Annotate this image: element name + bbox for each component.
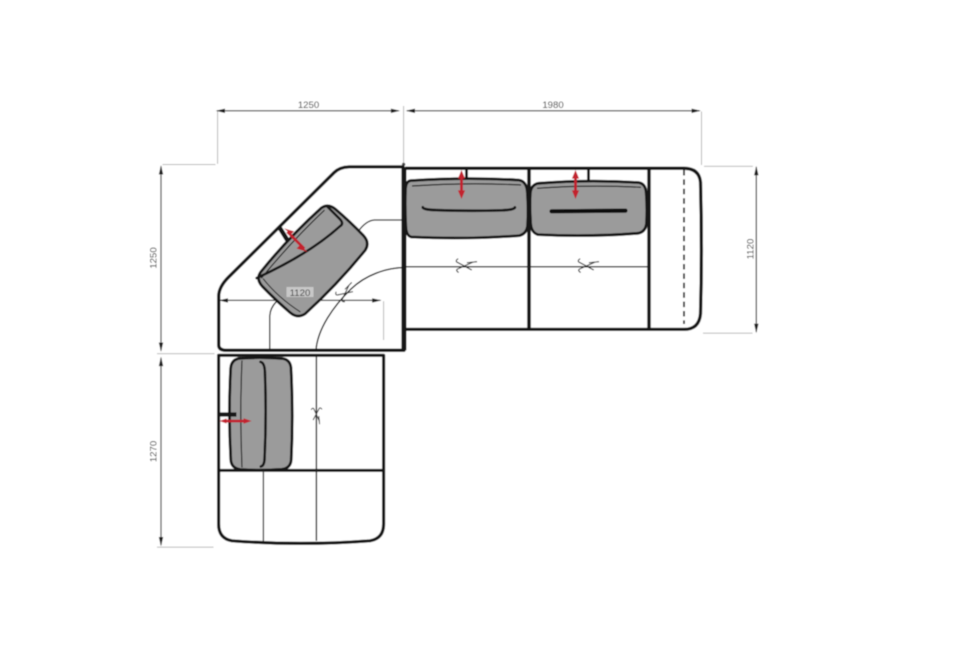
svg-text:1120: 1120 xyxy=(745,239,756,260)
svg-text:1980: 1980 xyxy=(542,100,563,111)
svg-text:1120: 1120 xyxy=(290,288,311,299)
svg-text:1250: 1250 xyxy=(148,247,159,268)
svg-text:1250: 1250 xyxy=(298,100,319,111)
svg-text:1270: 1270 xyxy=(148,441,159,462)
